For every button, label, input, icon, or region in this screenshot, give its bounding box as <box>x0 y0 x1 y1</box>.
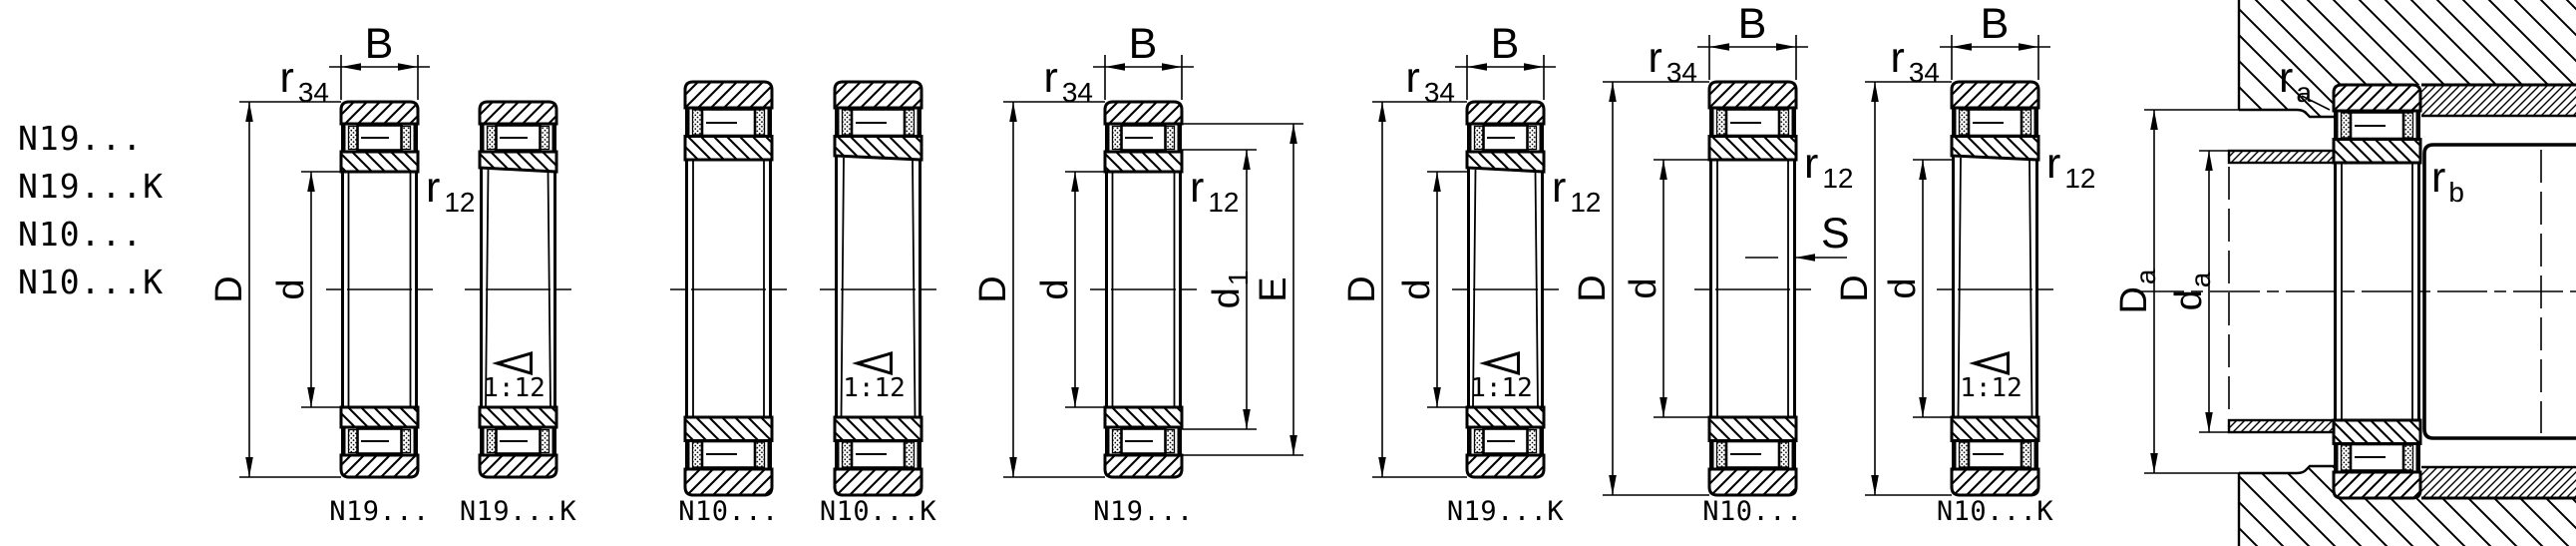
caption-bearing-1: N19... <box>329 496 430 527</box>
dim-label-bore-diameter: d <box>1623 277 1664 298</box>
taper-ratio-label: 1:12 <box>843 373 906 403</box>
taper-mark-bearing-4: 1:12 <box>843 353 906 403</box>
housing-shoulder-ring-upper <box>2421 85 2576 116</box>
dim-label-b: B <box>365 20 394 68</box>
series-item-n10k: N10...K <box>18 263 164 301</box>
dim-label-r34: r34 <box>1406 54 1455 108</box>
dim-label-b: B <box>1129 20 1158 68</box>
shaft-abutment-upper <box>2229 151 2334 163</box>
dim-label-outer-diameter: D <box>972 275 1014 302</box>
taper-ratio-label: 1:12 <box>1470 373 1533 403</box>
caption-bearing-6: N19...K <box>1447 496 1565 527</box>
dim-label-shaft-abutment-diameter: da <box>2168 272 2216 310</box>
dim-label-r12: r12 <box>426 164 475 218</box>
caption-bearing-7: N10... <box>1702 496 1803 527</box>
bearing-dimension-drawing: N19... N19...K N10... N10...K r34 B r12 … <box>0 0 2576 546</box>
series-item-n19k: N19...K <box>18 167 164 206</box>
cylindrical-roller-bearing-figure: N19... N19...K N10... N10...K r34 B r12 … <box>0 0 2576 546</box>
dim-label-outer-diameter: D <box>1834 274 1876 301</box>
shaft-abutment-lower <box>2229 420 2334 432</box>
dim-label-bore-diameter: d <box>1396 278 1438 299</box>
series-legend: N19... N19...K N10... N10...K <box>18 119 164 301</box>
dim-label-r12: r12 <box>1804 140 1853 194</box>
taper-mark-bearing-6: 1:12 <box>1470 353 1533 403</box>
taper-symbol-icon <box>858 353 892 373</box>
dim-label-r34: r34 <box>1649 34 1697 88</box>
dim-label-outer-diameter: D <box>208 275 250 302</box>
dim-label-d1: d1 <box>1206 271 1254 309</box>
taper-ratio-label: 1:12 <box>483 373 546 403</box>
caption-bearing-2: N19...K <box>460 496 577 527</box>
series-item-n10: N10... <box>18 215 143 254</box>
dim-label-bore-diameter: d <box>1034 278 1076 299</box>
bearing-section-4-n10k <box>835 82 921 495</box>
dim-label-e: E <box>1253 276 1294 301</box>
dim-label-r12: r12 <box>2046 140 2095 194</box>
dim-label-bore-diameter: d <box>1882 277 1924 298</box>
taper-symbol-icon <box>1975 353 2009 373</box>
caption-bearing-8: N10...K <box>1937 496 2054 527</box>
bearing-captions: N19... N19...K N10... N10...K N19... N19… <box>329 496 2053 527</box>
taper-mark-bearing-8: 1:12 <box>1960 353 2023 403</box>
bearing-section-8-n10k <box>1952 82 2038 495</box>
caption-bearing-4: N10...K <box>820 496 937 527</box>
taper-marks: 1:12 1:12 1:12 1:12 <box>483 353 2023 403</box>
dim-label-r34: r34 <box>1891 34 1940 88</box>
dim-label-r12: r12 <box>1190 164 1239 218</box>
caption-bearing-3: N10... <box>678 496 779 527</box>
taper-ratio-label: 1:12 <box>1960 373 2023 403</box>
dim-label-housing-abutment-diameter: Da <box>2113 269 2161 313</box>
dim-label-rb: rb <box>2431 154 2464 208</box>
bearing-sections <box>341 82 2038 495</box>
dim-label-outer-diameter: D <box>1572 274 1614 301</box>
dim-label-outer-diameter: D <box>1341 275 1383 302</box>
taper-symbol-icon <box>498 353 532 373</box>
dim-label-s: S <box>1821 210 1850 258</box>
bearing-section-3-n10 <box>685 82 772 495</box>
dim-label-b: B <box>1491 20 1520 68</box>
taper-symbol-icon <box>1485 353 1519 373</box>
dim-label-r34: r34 <box>1044 54 1093 108</box>
caption-bearing-5: N19... <box>1093 496 1194 527</box>
dim-label-b: B <box>1738 0 1767 48</box>
taper-mark-bearing-2: 1:12 <box>483 353 546 403</box>
series-item-n19: N19... <box>18 119 143 158</box>
housing-shoulder-ring-lower <box>2421 467 2576 498</box>
dim-label-r34: r34 <box>280 54 329 108</box>
mounting-drawing: ra rb Da da <box>2113 0 2576 546</box>
dim-label-r12: r12 <box>1552 164 1601 218</box>
dim-label-b: B <box>1981 0 2010 48</box>
bearing-section-7-n10 <box>1709 82 1796 495</box>
dim-label-bore-diameter: d <box>270 278 312 299</box>
